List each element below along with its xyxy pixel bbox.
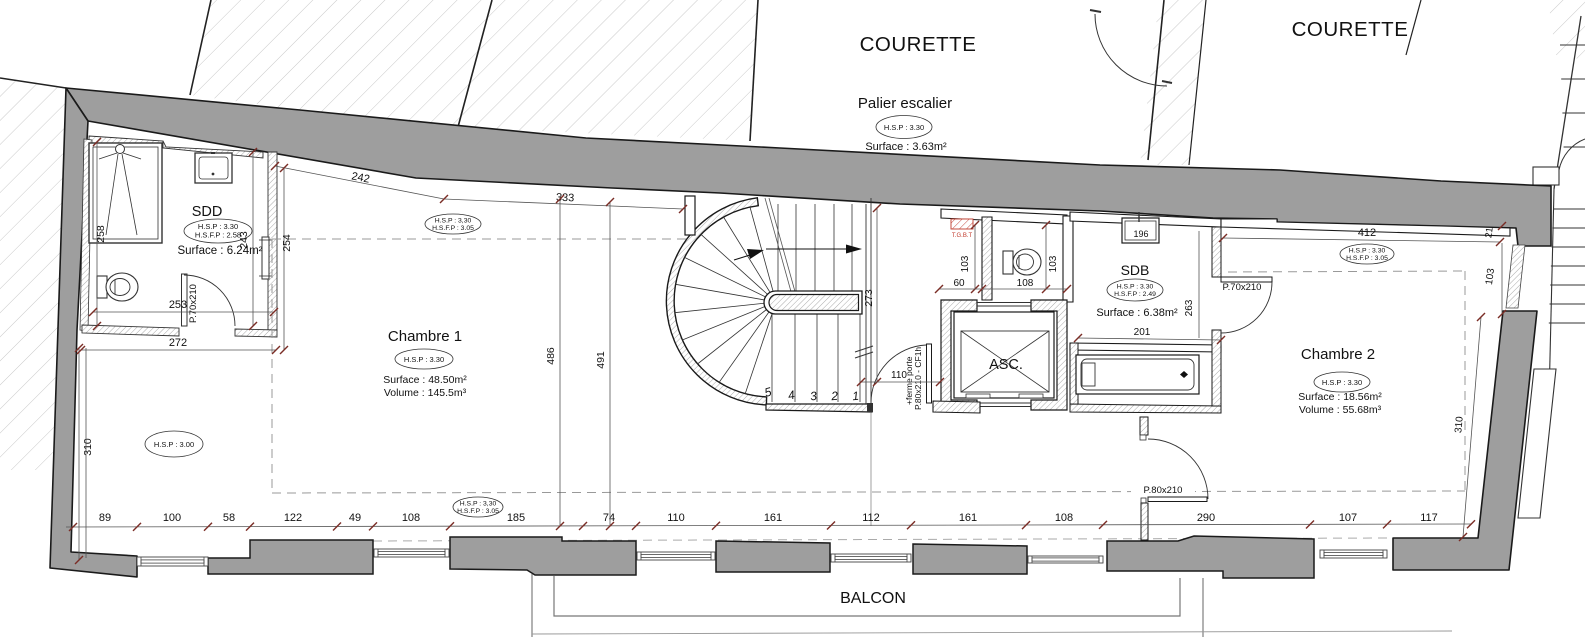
- svg-text:161: 161: [764, 512, 782, 524]
- svg-text:161: 161: [959, 512, 977, 524]
- svg-text:Chambre 1: Chambre 1: [388, 328, 462, 345]
- svg-text:Surface : 18.56m²: Surface : 18.56m²: [1298, 391, 1382, 403]
- svg-text:H.S.P : 3.30: H.S.P : 3.30: [1349, 248, 1386, 255]
- svg-text:290: 290: [1197, 512, 1215, 524]
- svg-text:196: 196: [1133, 229, 1148, 239]
- svg-text:H.S.P : 3.30: H.S.P : 3.30: [1322, 378, 1362, 387]
- svg-text:COURETTE: COURETTE: [1292, 18, 1409, 41]
- svg-text:2: 2: [830, 389, 839, 404]
- svg-text:P.70x210: P.70x210: [188, 284, 199, 323]
- svg-text:Surface : 6.38m²: Surface : 6.38m²: [1096, 307, 1178, 319]
- svg-text:122: 122: [284, 512, 302, 524]
- svg-text:108: 108: [402, 512, 420, 524]
- svg-text:P.80x210 - CF1h: P.80x210 - CF1h: [913, 347, 923, 410]
- svg-text:108: 108: [1055, 512, 1073, 524]
- svg-text:21: 21: [1483, 227, 1495, 239]
- svg-text:49: 49: [349, 512, 361, 524]
- svg-text:110: 110: [891, 370, 907, 381]
- svg-text:H.S.F.P : 3.05: H.S.F.P : 3.05: [457, 508, 499, 515]
- svg-text:103: 103: [960, 255, 971, 272]
- svg-text:COURETTE: COURETTE: [860, 33, 977, 56]
- svg-text:100: 100: [163, 512, 181, 524]
- svg-text:1: 1: [852, 389, 860, 404]
- svg-text:Volume : 55.68m³: Volume : 55.68m³: [1299, 404, 1382, 416]
- svg-text:H.S.P : 3.30: H.S.P : 3.30: [884, 123, 924, 132]
- svg-text:272: 272: [169, 337, 187, 349]
- svg-text:H.S.P : 3,30: H.S.P : 3,30: [460, 501, 497, 508]
- svg-text:H.S.F.P : 2.58: H.S.F.P : 2.58: [195, 231, 241, 240]
- svg-text:243: 243: [238, 231, 250, 249]
- svg-text:253: 253: [169, 299, 187, 311]
- svg-text:58: 58: [223, 512, 235, 524]
- svg-text:60: 60: [953, 278, 965, 289]
- svg-text:H.S.P : 3,30: H.S.P : 3,30: [435, 218, 472, 225]
- svg-text:486: 486: [545, 347, 557, 365]
- svg-text:P.80x210: P.80x210: [1144, 485, 1183, 496]
- svg-text:491: 491: [595, 351, 607, 369]
- svg-text:H.S.P : 3.00: H.S.P : 3.00: [154, 440, 194, 449]
- svg-text:Surface : 3.63m²: Surface : 3.63m²: [865, 141, 947, 153]
- svg-text:Palier escalier: Palier escalier: [858, 95, 952, 112]
- svg-text:BALCON: BALCON: [840, 590, 906, 607]
- svg-text:H.S.F.P : 3.05: H.S.F.P : 3.05: [1346, 255, 1388, 262]
- svg-text:412: 412: [1358, 227, 1376, 239]
- svg-text:201: 201: [1134, 327, 1151, 338]
- svg-text:273: 273: [863, 289, 875, 307]
- svg-text:258: 258: [95, 225, 107, 243]
- svg-text:Volume : 145.5m³: Volume : 145.5m³: [384, 387, 467, 399]
- svg-text:Chambre 2: Chambre 2: [1301, 346, 1375, 363]
- svg-text:H.S.F.P : 3.05: H.S.F.P : 3.05: [432, 225, 474, 232]
- svg-text:108: 108: [1017, 278, 1034, 289]
- svg-text:112: 112: [862, 512, 880, 524]
- svg-text:P.70x210: P.70x210: [1223, 282, 1262, 293]
- svg-text:ASC.: ASC.: [989, 357, 1023, 373]
- svg-text:H.S.F.P : 2.49: H.S.F.P : 2.49: [1114, 291, 1156, 298]
- svg-text:310: 310: [82, 438, 94, 456]
- svg-text:110: 110: [667, 512, 685, 524]
- svg-text:T.G.B.T: T.G.B.T: [952, 233, 973, 239]
- svg-text:333: 333: [556, 192, 575, 205]
- svg-text:310: 310: [1453, 416, 1465, 434]
- svg-text:117: 117: [1420, 512, 1438, 524]
- svg-text:107: 107: [1339, 512, 1357, 524]
- svg-text:SDD: SDD: [192, 204, 223, 220]
- svg-text:254: 254: [281, 234, 293, 252]
- svg-text:263: 263: [1184, 299, 1195, 316]
- svg-text:SDB: SDB: [1121, 262, 1150, 278]
- svg-text:103: 103: [1048, 255, 1059, 272]
- svg-text:185: 185: [507, 512, 525, 524]
- svg-text:Surface : 48.50m²: Surface : 48.50m²: [383, 374, 467, 386]
- svg-text:89: 89: [99, 512, 111, 524]
- svg-text:H.S.P : 3.30: H.S.P : 3.30: [1117, 284, 1154, 291]
- svg-text:H.S.P : 3.30: H.S.P : 3.30: [404, 355, 444, 364]
